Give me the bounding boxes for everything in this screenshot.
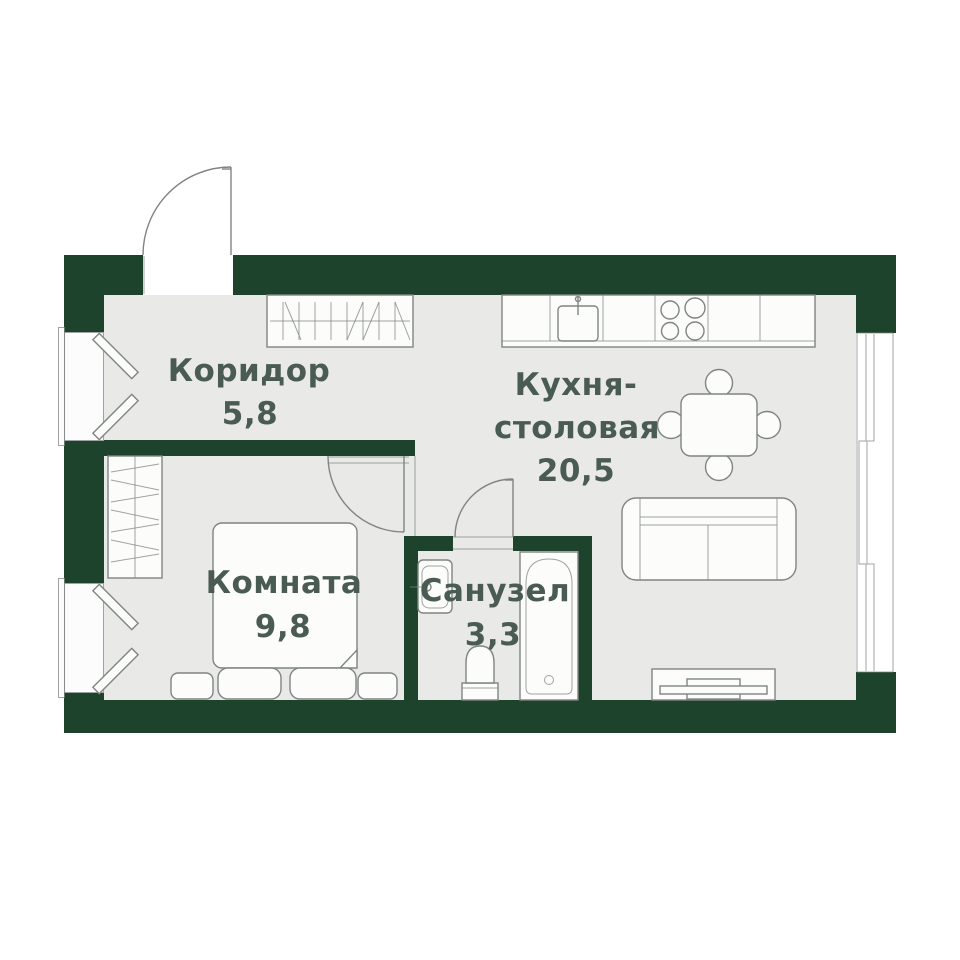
bedroom-area: 9,8	[255, 609, 311, 645]
coat-rack-icon	[267, 295, 413, 347]
toilet-icon	[462, 646, 498, 700]
corridor-label: Коридор	[168, 353, 331, 389]
bedroom-label: Комната	[206, 565, 363, 601]
bathroom-area: 3,3	[465, 617, 521, 653]
entrance-door-icon	[143, 167, 231, 294]
plan-linework	[0, 0, 960, 960]
kitchen-label-line2: столовая	[494, 410, 660, 446]
tv-stand-icon	[652, 669, 775, 700]
floor-plan-canvas: Коридор 5,8 Кухня- столовая 20,5 Комната…	[0, 0, 960, 960]
bathroom-door-icon	[453, 479, 513, 549]
corridor-window-icon	[59, 328, 139, 446]
dining-table-icon	[658, 370, 781, 481]
sofa-icon	[622, 498, 796, 580]
kitchen-window-icon	[857, 333, 893, 672]
corridor-area: 5,8	[222, 396, 278, 432]
kitchen-counter-icon	[502, 295, 815, 347]
wardrobe-icon	[108, 456, 162, 578]
kitchen-label-line1: Кухня-	[515, 367, 638, 403]
bathroom-label: Санузел	[420, 573, 571, 609]
bedroom-door-icon	[328, 456, 409, 532]
bedroom-window-icon	[59, 579, 139, 698]
kitchen-area: 20,5	[537, 453, 616, 489]
